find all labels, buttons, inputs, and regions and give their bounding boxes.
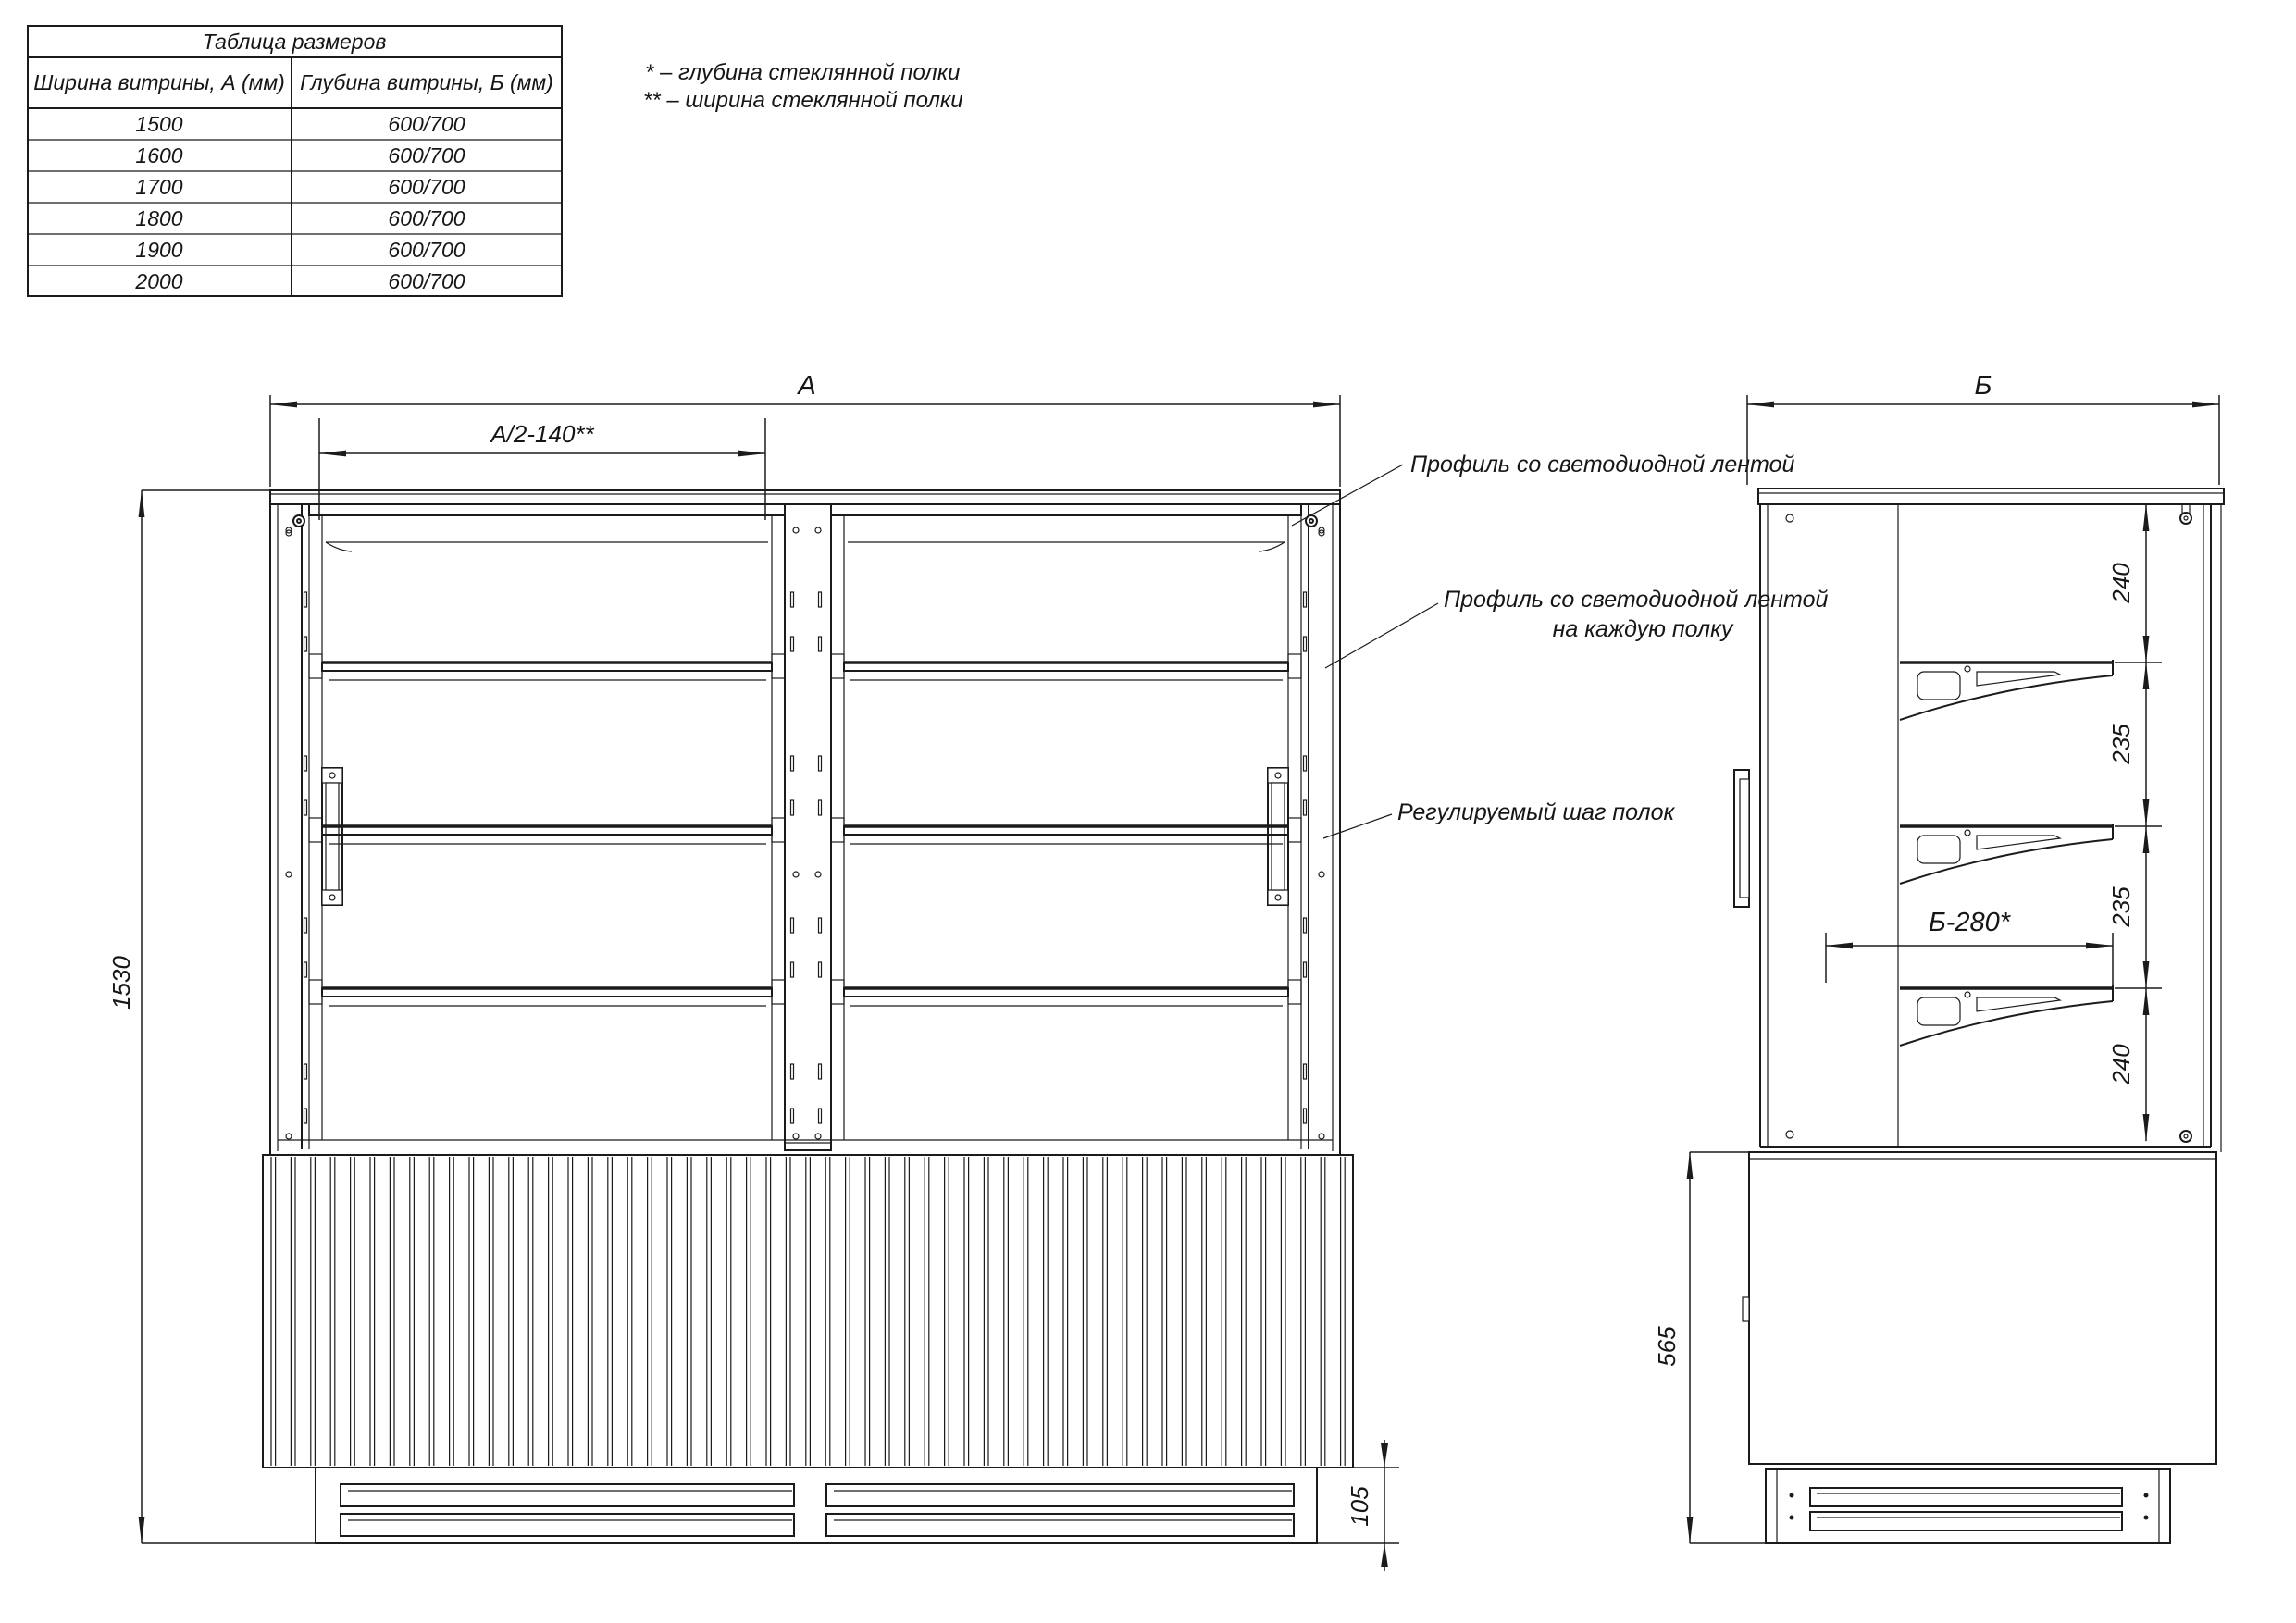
shelf-connector (1288, 654, 1301, 678)
shelf-connector (772, 818, 785, 842)
hole-icon (1319, 1134, 1324, 1139)
shelf-height-bracket-left (322, 768, 342, 905)
technical-drawing: Таблица размеров Ширина витрины, А (мм) … (0, 0, 2296, 1623)
cell-depth: 600/700 (388, 143, 465, 167)
post-slot (1304, 918, 1307, 933)
shelf-bracket (1900, 660, 2113, 720)
shelf-connector (772, 654, 785, 678)
post-slot (304, 756, 307, 771)
dim-label-B: Б (1975, 371, 1992, 401)
shelf-connector (1288, 818, 1301, 842)
bracket-hole (1917, 672, 1960, 700)
legend-line2: ** – ширина стеклянной полки (643, 88, 963, 113)
cell-depth: 600/700 (388, 206, 465, 230)
dim-label-plinth: 105 (1346, 1486, 1373, 1527)
post-slot (1304, 1109, 1307, 1123)
leader-line (1325, 603, 1438, 668)
dim-label-235-b: 235 (2107, 886, 2135, 928)
dim-label-A: А (796, 371, 815, 401)
side-hinge-nub (1743, 1297, 1749, 1321)
hole-icon (1965, 666, 1970, 672)
shelf-connector (309, 654, 322, 678)
shelf-bracket (1900, 985, 2113, 1046)
side-top-lid (1758, 489, 2224, 504)
screw-icon (1786, 1131, 1793, 1138)
post-slot (304, 637, 307, 651)
hole-icon (286, 872, 292, 877)
leader-line (1323, 814, 1392, 838)
hole-icon (1319, 872, 1324, 877)
screw-icon (1786, 514, 1793, 522)
screw-icon (2144, 1493, 2149, 1498)
post-slot (304, 1109, 307, 1123)
arrow-icon (1381, 1543, 1388, 1567)
post-slot (1304, 592, 1307, 607)
post-slot (1304, 756, 1307, 771)
dim-label-240-bottom: 240 (2107, 1044, 2135, 1085)
table-header-depth: Глубина витрины, Б (мм) (300, 70, 553, 94)
hole-icon (1965, 992, 1970, 997)
table-title: Таблица размеров (203, 30, 387, 54)
dim-label-shelf-depth: Б-280* (1929, 908, 2012, 937)
screw-icon (293, 515, 304, 527)
hole-icon (286, 1134, 292, 1139)
post-slot (1304, 637, 1307, 651)
dim-label-body-height: 565 (1653, 1326, 1681, 1367)
side-lower-body (1749, 1152, 2216, 1464)
cell-depth: 600/700 (388, 175, 465, 199)
shelf-connector (772, 980, 785, 1004)
post-slot (304, 918, 307, 933)
callout-led-shelf-line2: на каждую полку (1553, 616, 1734, 642)
post-slot (304, 962, 307, 977)
front-top-lid (270, 490, 1340, 504)
callout-led-shelf-line1: Профиль со светодиодной лентой (1444, 587, 1828, 613)
dim-label-240-top: 240 (2107, 563, 2135, 604)
bracket-hole (1917, 836, 1960, 863)
top-led-profile (831, 504, 1301, 515)
shelf-connector (831, 654, 844, 678)
cell-depth: 600/700 (388, 238, 465, 262)
post-slot (1304, 1064, 1307, 1079)
cell-width: 1500 (135, 112, 182, 136)
cell-depth: 600/700 (388, 112, 465, 136)
callout-led-top: Профиль со светодиодной лентой (1410, 452, 1794, 477)
shelf-height-bracket-right (1268, 768, 1288, 905)
size-table-border (28, 26, 562, 296)
screw-icon (2180, 513, 2191, 524)
legend: * – глубина стеклянной полки ** – ширина… (643, 60, 963, 113)
hole-icon (1965, 830, 1970, 836)
arrow-icon (1381, 1443, 1388, 1468)
front-base-panel (263, 1155, 1353, 1468)
dim-label-height: 1530 (107, 956, 135, 1010)
rear-handle (1734, 770, 1749, 907)
side-view (1734, 489, 2224, 1543)
dim-label-235-a: 235 (2107, 724, 2135, 765)
front-center-post (785, 504, 831, 1150)
post-slot (1304, 800, 1307, 815)
cell-width: 1600 (135, 143, 182, 167)
post-slot (304, 800, 307, 815)
shelf-connector (309, 980, 322, 1004)
screw-icon (2180, 1131, 2191, 1142)
shelf-connector (831, 818, 844, 842)
cell-width: 2000 (134, 269, 182, 293)
light-arc (1259, 542, 1285, 551)
screw-icon (1790, 1493, 1794, 1498)
cell-width: 1800 (135, 206, 182, 230)
bracket-hole (1917, 997, 1960, 1025)
size-table: Таблица размеров Ширина витрины, А (мм) … (28, 26, 562, 296)
screw-icon (1790, 1516, 1794, 1520)
shelf-connector (831, 980, 844, 1004)
table-header-width: Ширина витрины, А (мм) (33, 70, 285, 94)
screw-icon (2144, 1516, 2149, 1520)
legend-line1: * – глубина стеклянной полки (645, 60, 961, 85)
post-slot (304, 592, 307, 607)
front-view (263, 490, 1353, 1543)
cell-depth: 600/700 (388, 269, 465, 293)
post-slot (304, 1064, 307, 1079)
dim-label-A-half: А/2-140** (489, 420, 594, 448)
shelf-bracket (1900, 824, 2113, 884)
cell-width: 1900 (135, 238, 182, 262)
post-slot (1304, 962, 1307, 977)
callout-shelf-step: Регулируемый шаг полок (1397, 799, 1675, 825)
top-led-profile (309, 504, 785, 515)
light-arc (326, 542, 352, 551)
cell-width: 1700 (135, 175, 182, 199)
shelf-brackets (1900, 660, 2113, 1046)
shelf-connector (309, 818, 322, 842)
shelf-connector (1288, 980, 1301, 1004)
